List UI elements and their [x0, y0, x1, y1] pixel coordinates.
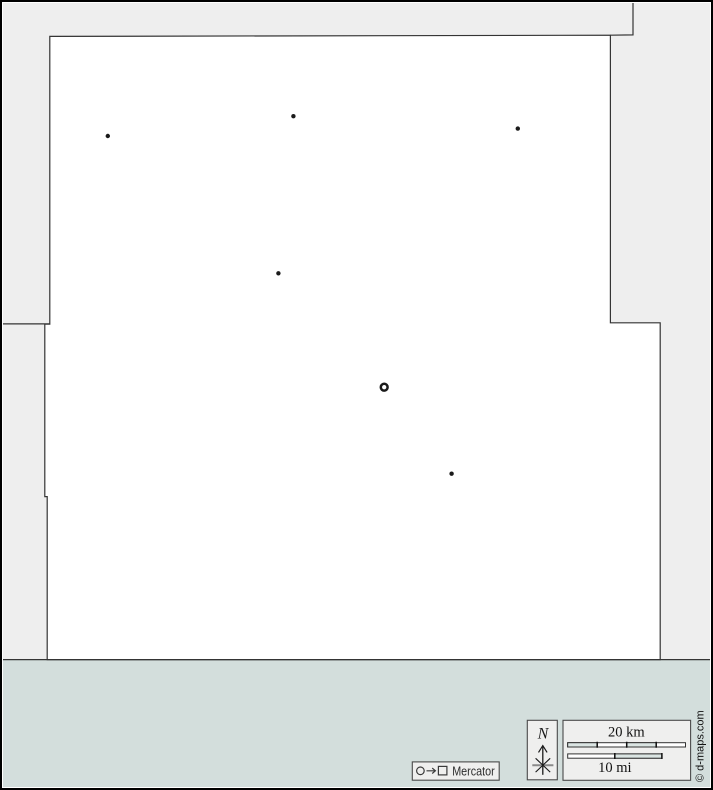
svg-text:© d-maps.com: © d-maps.com	[695, 710, 707, 782]
svg-text:Mercator: Mercator	[452, 765, 495, 779]
svg-text:N: N	[537, 726, 550, 743]
svg-text:10 mi: 10 mi	[598, 760, 631, 776]
svg-text:20 km: 20 km	[608, 724, 645, 740]
